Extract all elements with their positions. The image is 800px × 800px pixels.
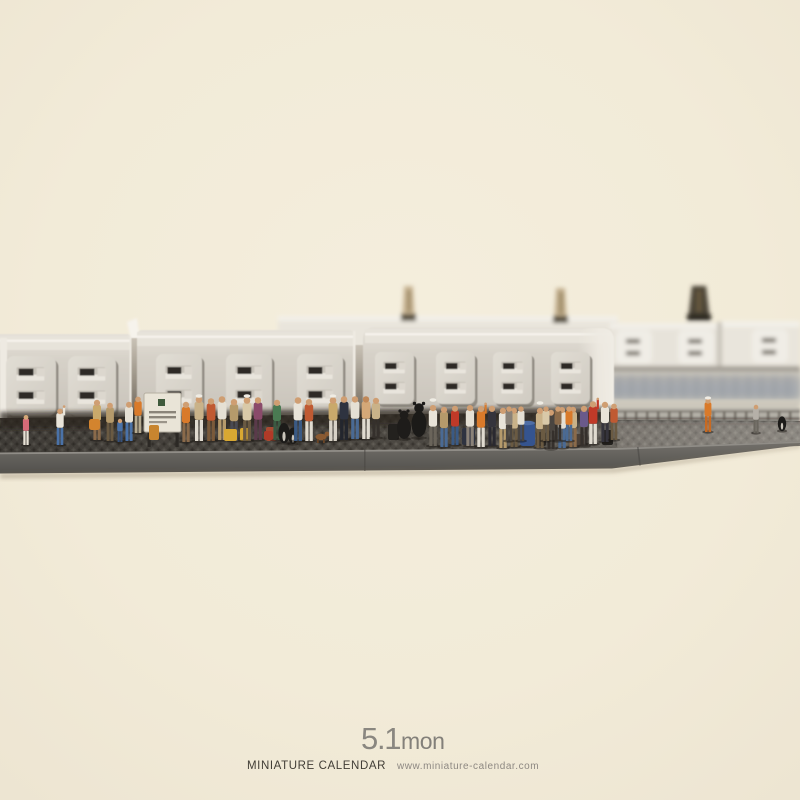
svg-text:www.miniature-calendar.com: www.miniature-calendar.com bbox=[396, 761, 539, 772]
svg-text:5.1: 5.1 bbox=[361, 721, 400, 756]
svg-text:MINIATURE CALENDAR: MINIATURE CALENDAR bbox=[247, 760, 386, 772]
svg-text:mon: mon bbox=[401, 728, 445, 754]
